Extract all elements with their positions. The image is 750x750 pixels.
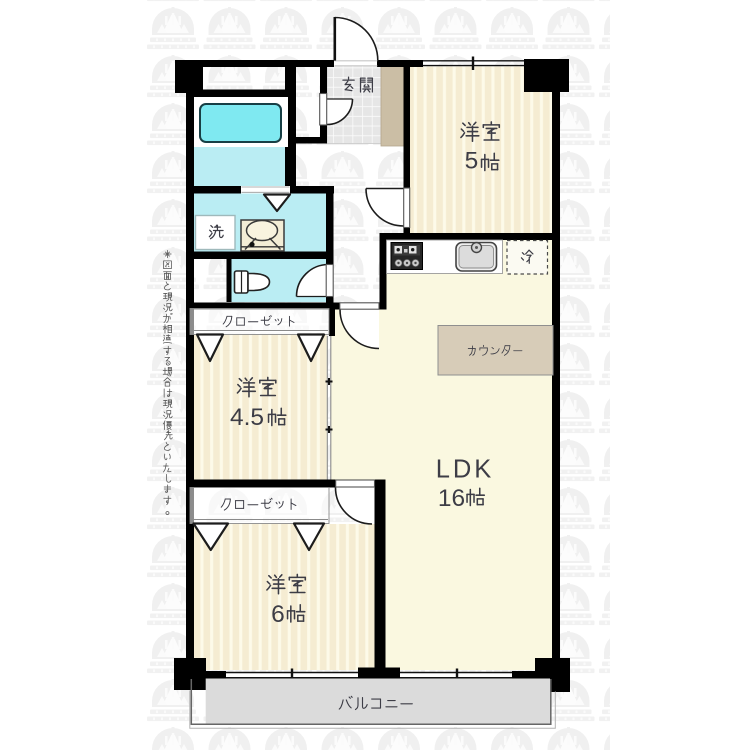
- svg-text:16: 16: [438, 485, 465, 512]
- svg-text:6: 6: [271, 601, 285, 628]
- svg-text:LDK: LDK: [436, 456, 495, 484]
- svg-text:4.5: 4.5: [230, 404, 264, 431]
- svg-text:5: 5: [465, 148, 479, 175]
